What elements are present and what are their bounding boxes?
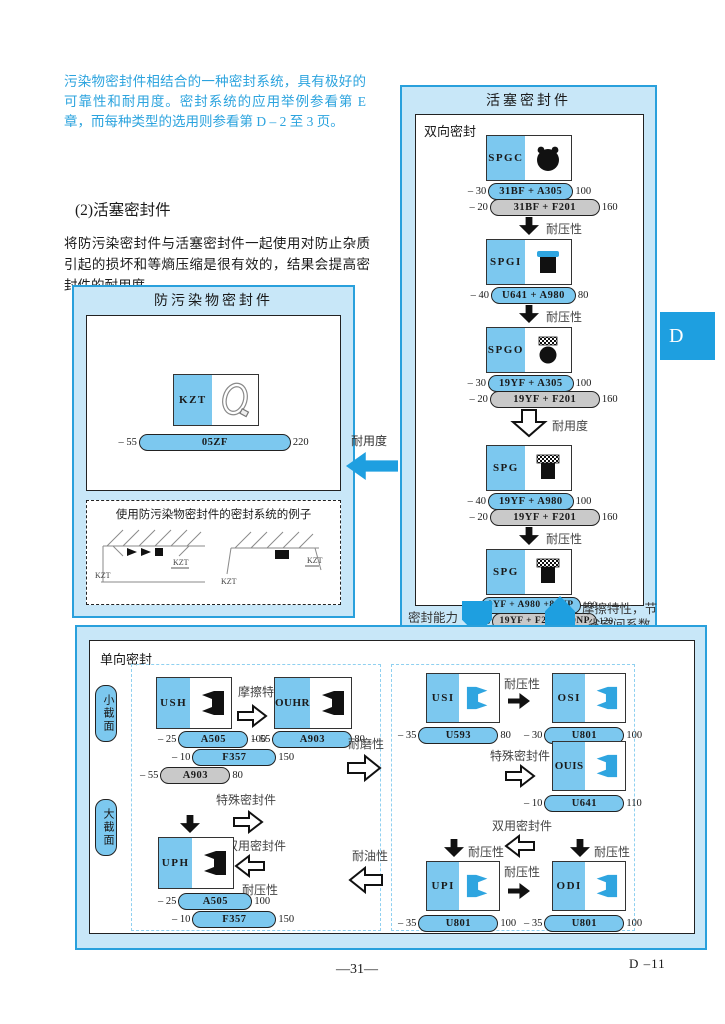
temp-high: 100	[626, 730, 642, 741]
odi-code-label: ODI	[553, 862, 585, 910]
temp-low: – 55	[118, 437, 136, 448]
material-pill: U641 + A980	[491, 287, 576, 304]
hollow-left-arrow-icon	[234, 853, 266, 879]
piston-seal-box: 活塞密封件 双向密封 SPGC – 30 31BF + A305 100 –	[400, 85, 657, 633]
contamination-seal-box: 防污染物密封件 KZT – 55 05ZF 220	[72, 285, 355, 618]
hollow-right-arrow-icon	[232, 809, 264, 835]
example-panel: 使用防污染物密封件的密封系统的例子 KZT KZT	[86, 500, 341, 605]
range-row: – 10 F357 150	[172, 749, 294, 766]
range-row: – 20 31BF + F201 160	[430, 199, 657, 216]
material-pill: F357	[192, 911, 276, 928]
material-pill: A903	[160, 767, 230, 784]
spgc-seal-cell: SPGC	[486, 135, 572, 181]
temp-low: – 35	[524, 918, 542, 929]
rod-inner-panel: 单向密封 小截面 大截面 USH 摩擦特性	[89, 640, 695, 934]
usi-seal-icon	[459, 674, 499, 722]
page-ref: D –11	[629, 956, 666, 972]
spgc-seal-icon	[525, 136, 571, 180]
temp-high: 160	[602, 202, 618, 213]
seal-system-drawing-right: KZT KZT	[219, 526, 337, 600]
material-pill: A505	[178, 893, 252, 910]
sealing-capacity-label: 密封能力	[408, 607, 458, 626]
range-row: – 20 19YF + F201 160	[430, 509, 657, 526]
range-row: – 40 U641 + A980 80	[416, 287, 643, 304]
temp-low: – 30	[468, 378, 486, 389]
pressure-label: 耐压性	[504, 863, 540, 880]
hollow-right-arrow-icon	[236, 703, 268, 729]
intro-paragraph: 污染物密封件相结合的一种密封系统，具有极好的可靠性和耐用度。密封系统的应用举例参…	[64, 72, 366, 132]
odi-seal-icon	[585, 862, 625, 910]
pressure-label: 耐压性	[468, 843, 504, 860]
dual-seal-label: 双用密封件	[226, 837, 286, 854]
pressure-label: 耐压性	[546, 308, 582, 325]
osi-seal-cell: OSI	[552, 673, 626, 723]
osi-seal-icon	[585, 674, 625, 722]
spgo-seal-cell: SPGO	[486, 327, 572, 373]
temp-low: – 10	[172, 914, 190, 925]
pressure-label: 耐压性	[546, 220, 582, 237]
ush-code-label: USH	[157, 678, 190, 728]
large-section-tag: 大截面	[95, 799, 117, 856]
spgc-code-label: SPGC	[487, 136, 525, 180]
temp-high: 100	[626, 918, 642, 929]
temp-low: – 10	[524, 798, 542, 809]
dual-seal-label: 双用密封件	[492, 817, 552, 834]
range-row: – 10 U641 110	[524, 795, 642, 812]
temp-low: – 10	[172, 752, 190, 763]
hollow-left-arrow-icon	[504, 833, 536, 859]
temp-high: 80	[578, 290, 589, 301]
material-pill: F357	[192, 749, 276, 766]
material-pill: 31BF + A305	[488, 183, 573, 200]
material-pill: A903	[272, 731, 352, 748]
ush-seal-cell: USH	[156, 677, 232, 729]
temp-low: – 20	[469, 512, 487, 523]
spg-seal-icon	[525, 446, 571, 490]
ouis-seal-cell: OUIS	[552, 741, 626, 791]
down-arrow-icon	[519, 217, 539, 235]
contamination-inner-panel: KZT – 55 05ZF 220	[86, 315, 341, 491]
temp-high: 160	[602, 512, 618, 523]
temp-low: – 40	[471, 290, 489, 301]
example-title: 使用防污染物密封件的密封系统的例子	[87, 506, 340, 522]
temp-high: 150	[278, 752, 294, 763]
oil-resistance-label: 耐油性	[352, 847, 388, 864]
section-heading: (2)活塞密封件	[75, 198, 171, 220]
range-row: – 20 19YF + F201 160	[430, 391, 657, 408]
material-pill: U801	[544, 915, 624, 932]
material-pill: 19YF + F201	[490, 509, 600, 526]
spgo-code-label: SPGO	[487, 328, 525, 372]
right-arrow-icon	[508, 883, 530, 899]
range-row: – 35 U801 100	[524, 915, 642, 932]
ouhr-seal-cell: OUHR	[274, 677, 352, 729]
seal-system-drawing-left: KZT KZT	[93, 526, 213, 600]
temp-low: – 35	[398, 730, 416, 741]
temp-high: 160	[602, 394, 618, 405]
temp-high: 110	[626, 798, 641, 809]
down-arrow-icon	[519, 305, 539, 323]
durability-label: 耐用度	[552, 417, 588, 434]
ouhr-code-label: OUHR	[275, 678, 310, 728]
down-arrow-icon	[570, 839, 590, 857]
material-pill: U641	[544, 795, 624, 812]
right-seal-group: USI – 35 U593 80 耐压性 OSI	[391, 664, 635, 931]
spg-seal-cell: SPG	[486, 445, 572, 491]
temp-low: – 40	[468, 496, 486, 507]
material-pill: 31BF + F201	[490, 199, 600, 216]
temp-low: – 25	[158, 734, 176, 745]
temp-low: – 55	[140, 770, 158, 781]
uph-seal-cell: UPH	[158, 837, 234, 889]
range-row: – 55 A903 80	[140, 767, 243, 784]
temp-high: 220	[293, 437, 309, 448]
kzt-seal-cell: KZT	[173, 374, 259, 426]
down-arrow-icon	[519, 527, 539, 545]
piston-inner-panel: 双向密封 SPGC – 30 31BF + A305 100 – 20 31BF…	[415, 114, 644, 606]
temp-low: – 30	[524, 730, 542, 741]
spg-code-label: SPG	[487, 446, 525, 490]
temp-high: 100	[500, 918, 516, 929]
small-section-tag: 小截面	[95, 685, 117, 742]
uph-code-label: UPH	[159, 838, 192, 888]
temp-high: 100	[575, 186, 591, 197]
uph-seal-icon	[192, 838, 233, 888]
kzt-callout: KZT	[221, 577, 237, 586]
usi-code-label: USI	[427, 674, 459, 722]
kzt-range-row: – 55 05ZF 220	[87, 434, 340, 451]
upi-code-label: UPI	[427, 862, 459, 910]
rod-seal-box: 单向密封 小截面 大截面 USH 摩擦特性	[75, 625, 707, 950]
material-pill: A505	[178, 731, 248, 748]
right-arrow-icon	[508, 693, 530, 709]
special-seal-label: 特殊密封件	[490, 747, 550, 764]
range-row: – 30 31BF + A305 100	[416, 183, 643, 200]
temp-low: – 20	[469, 202, 487, 213]
page-number: —31—	[336, 962, 378, 978]
range-row: – 35 U801 100	[398, 915, 516, 932]
temp-high: 80	[232, 770, 243, 781]
hollow-left-arrow-icon	[348, 865, 384, 895]
down-arrow-icon	[444, 839, 464, 857]
ouhr-seal-icon	[310, 678, 351, 728]
pressure-label: 耐压性	[546, 530, 582, 547]
range-row: – 30 19YF + A305 100	[416, 375, 643, 392]
spgi-seal-cell: SPGI	[486, 239, 572, 285]
hollow-right-arrow-icon	[504, 763, 536, 789]
durability-arrow-label: 耐用度	[351, 432, 387, 449]
temp-high: 100	[254, 896, 270, 907]
special-seal-label: 特殊密封件	[216, 791, 276, 808]
material-pill: U801	[418, 915, 498, 932]
spg-np-seal-cell: SPG	[486, 549, 572, 595]
kzt-ring-icon	[212, 375, 258, 425]
left-seal-group: USH 摩擦特性 OUHR	[131, 664, 381, 931]
upi-seal-cell: UPI	[426, 861, 500, 911]
piston-box-title: 活塞密封件	[402, 90, 655, 110]
range-row: – 25 A505 100	[158, 731, 266, 748]
temp-low: – 20	[469, 394, 487, 405]
catalog-page: 污染物密封件相结合的一种密封系统，具有极好的可靠性和耐用度。密封系统的应用举例参…	[0, 0, 725, 1024]
kzt-callout: KZT	[307, 556, 323, 565]
temp-high: 100	[576, 496, 592, 507]
kzt-callout: KZT	[173, 558, 189, 567]
material-pill: 19YF + A980	[488, 493, 574, 510]
temp-low: – 30	[468, 186, 486, 197]
range-row: – 10 F357 150	[172, 911, 294, 928]
ush-seal-icon	[190, 678, 231, 728]
hollow-down-arrow-icon	[510, 408, 548, 438]
down-arrow-icon	[180, 815, 200, 833]
ouis-seal-icon	[585, 742, 625, 790]
temp-high: 100	[576, 378, 592, 389]
temp-low: – 25	[158, 896, 176, 907]
range-row: – 35 U593 80	[398, 727, 511, 744]
bidirectional-label: 双向密封	[424, 121, 476, 140]
spg-np-code-label: SPG	[487, 550, 525, 594]
material-pill: 05ZF	[139, 434, 291, 451]
range-row: – 25 A505 100	[158, 893, 270, 910]
pressure-label: 耐压性	[594, 843, 630, 860]
temp-high: 80	[500, 730, 511, 741]
odi-seal-cell: ODI	[552, 861, 626, 911]
wear-resistance-label: 耐磨性	[348, 735, 384, 752]
osi-code-label: OSI	[553, 674, 585, 722]
spgo-seal-icon	[525, 328, 571, 372]
contamination-box-title: 防污染物密封件	[74, 290, 353, 310]
spgi-code-label: SPGI	[487, 240, 525, 284]
kzt-code-label: KZT	[174, 375, 212, 425]
spg-np-seal-icon	[525, 550, 571, 594]
temp-low: – 55	[252, 734, 270, 745]
temp-high: 150	[278, 914, 294, 925]
hollow-right-arrow-icon	[346, 753, 382, 783]
material-pill: 19YF + A305	[488, 375, 574, 392]
material-pill: U593	[418, 727, 498, 744]
temp-low: – 35	[398, 918, 416, 929]
usi-seal-cell: USI	[426, 673, 500, 723]
spgi-seal-icon	[525, 240, 571, 284]
kzt-callout: KZT	[95, 571, 111, 580]
ouis-code-label: OUIS	[553, 742, 585, 790]
range-row: – 40 19YF + A980 100	[416, 493, 643, 510]
pressure-label: 耐压性	[504, 675, 540, 692]
chapter-tab-d: D	[660, 312, 715, 360]
material-pill: 19YF + F201	[490, 391, 600, 408]
upi-seal-icon	[459, 862, 499, 910]
